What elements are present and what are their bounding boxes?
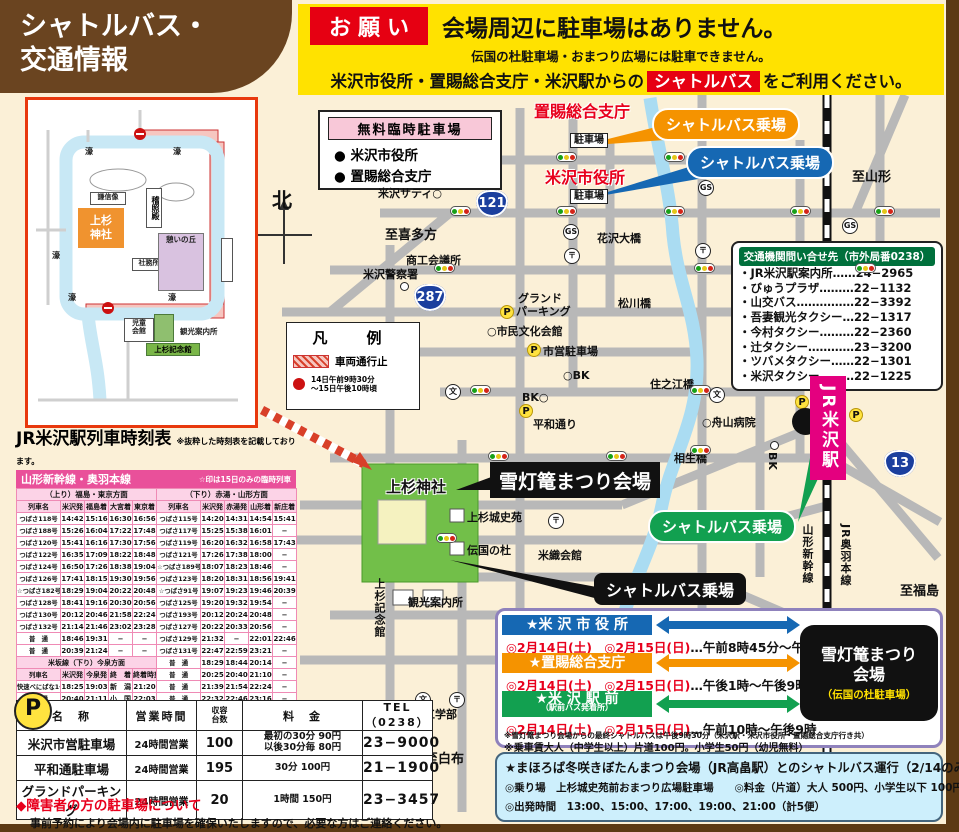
contact-name: ・今村タクシー bbox=[739, 325, 820, 340]
traffic-light-icon bbox=[690, 385, 711, 395]
timetable-row: 普 通18:4619:31−−つばさ129号21:32−22:0122:46 bbox=[17, 633, 297, 645]
contact-dots: …… bbox=[833, 266, 856, 281]
school-icon: 文 bbox=[709, 387, 725, 403]
traffic-light-icon bbox=[690, 445, 711, 455]
venue-inset-map: 濠 濠 濠 濠 濠 上杉神社 稽照殿 謙信像 社務所 憩いの丘 児童会館 上杉記… bbox=[25, 97, 258, 428]
festival-venue-box: 雪灯篭まつり 会場 （伝国の杜駐車場） bbox=[800, 625, 938, 721]
timetable-line-band: 山形新幹線・奥羽本線 ☆印は15日のみの臨時列車 bbox=[16, 470, 296, 488]
map-label: 商工会議所 bbox=[406, 252, 461, 268]
timetable-row: つばさ122号16:3517:0918:2218:48つばさ121号17:261… bbox=[17, 549, 297, 561]
disabled-note-body: 事前予約により会場内に駐車場を確保いたしますので、必要な方はご連絡ください。 bbox=[16, 815, 486, 831]
traffic-light-icon bbox=[556, 206, 577, 216]
map-label: 伝国の杜 bbox=[467, 542, 511, 558]
map-label: 松川橋 bbox=[618, 295, 651, 311]
map-label: 平和通り bbox=[533, 416, 577, 432]
route-badge: 287 bbox=[414, 284, 446, 311]
map-label: BK bbox=[766, 452, 779, 471]
disabled-note-title: ◆障害者の方の駐車場について bbox=[16, 794, 486, 814]
map-label: 駐車場 bbox=[570, 133, 608, 148]
contact-dots: … bbox=[843, 310, 855, 325]
map-label: 置賜総合支庁 bbox=[534, 98, 630, 122]
timetable-row: つばさ118号14:4215:1616:3016:56つばさ115号14:201… bbox=[17, 513, 297, 525]
timetable-row: 普 通20:3921:24−−つばさ131号22:4722:5923:21− bbox=[17, 645, 297, 657]
traffic-light-icon bbox=[694, 263, 715, 273]
venue-box-subtitle: （伝国の杜駐車場） bbox=[822, 687, 917, 702]
shuttle-stop-bubble-okitama: シャトルバス乗場 bbox=[652, 108, 800, 141]
timetable-header-row: 列車名米沢発福島着大宮着東京着列車名米沢発赤湯発山形着新庄着 bbox=[17, 501, 297, 513]
contact-tel: 23−3200 bbox=[854, 340, 912, 355]
traffic-light-icon bbox=[664, 206, 685, 216]
post-office-icon: 〒 bbox=[564, 248, 580, 264]
map-label: JR奥羽本線 bbox=[837, 524, 853, 587]
shuttle-stop-label: ★米 沢 駅 前（駅前バス発着所） bbox=[502, 691, 652, 717]
notice-row3-pre: 米沢市役所・置賜総合支庁・米沢駅からの bbox=[331, 72, 645, 91]
traffic-light-icon bbox=[790, 206, 811, 216]
map-label: 米織会館 bbox=[538, 547, 582, 563]
map-label: 上杉城史苑 bbox=[467, 509, 522, 525]
legend-note-line1: 14日午前9時30分 bbox=[311, 375, 375, 384]
shuttle-stop-label: ★米 沢 市 役 所 bbox=[502, 615, 652, 635]
contact-entry: ・ツバメタクシー……22−1301 bbox=[739, 354, 935, 369]
uesugi-shrine-inset: 上杉神社 bbox=[78, 208, 124, 248]
timetable-table: （上り）福島・東京方面（下り）赤湯・山形方面列車名米沢発福島着大宮着東京着列車名… bbox=[16, 488, 297, 705]
contact-dots: ……… bbox=[820, 325, 855, 340]
contact-name: ・吾妻観光タクシー bbox=[739, 310, 843, 325]
map-label: 観光案内所 bbox=[408, 594, 463, 610]
shuttle-route-arrow bbox=[668, 659, 788, 667]
map-label: 駐車場 bbox=[570, 189, 608, 204]
contact-tel: 22−2360 bbox=[854, 325, 912, 340]
timetable-row: 快速べにばな1号18:2519:03新 潟21:20普 通21:3921:542… bbox=[17, 681, 297, 693]
post-office-icon: 〒 bbox=[695, 243, 711, 259]
timetable-row: つばさ124号16:5017:2618:3819:04☆つばさ189号18:07… bbox=[17, 561, 297, 573]
shuttle-stop-bubble-cityhall: シャトルバス乗場 bbox=[686, 146, 834, 179]
free-parking-box: 無料臨時駐車場 ● 米沢市役所 ● 置賜総合支庁 bbox=[318, 110, 502, 190]
road-closed-label: 車両通行止 bbox=[335, 354, 388, 369]
contact-name: ・辻タクシー bbox=[739, 340, 808, 355]
road-closed-swatch bbox=[293, 355, 329, 368]
contact-tel: 22−1225 bbox=[854, 369, 912, 384]
hill-label: 憩いの丘 bbox=[166, 235, 196, 244]
map-label: 住之江橋 bbox=[650, 376, 694, 392]
train-timetable: JR米沢駅列車時刻表 ※抜粋した時刻表を記載しております。 山形新幹線・奥羽本線… bbox=[16, 424, 296, 705]
parking-icon: P bbox=[500, 305, 514, 319]
traffic-light-icon bbox=[606, 451, 627, 461]
legend-title: 凡 例 bbox=[293, 327, 413, 348]
uesugi-memorial-label: 上杉記念館 bbox=[146, 343, 200, 356]
traffic-light-icon bbox=[874, 206, 895, 216]
moat-label: 濠 bbox=[85, 146, 93, 157]
traffic-light-icon bbox=[436, 533, 457, 543]
contact-dots: ……… bbox=[819, 281, 854, 296]
no-entry-icon bbox=[102, 302, 114, 314]
contact-entry: ・今村タクシー………22−2360 bbox=[739, 325, 935, 340]
traffic-light-icon bbox=[556, 152, 577, 162]
shuttle-time-text: …午後1時〜午後9時 bbox=[690, 678, 807, 693]
moat-label: 濠 bbox=[173, 146, 181, 157]
traffic-light-icon bbox=[488, 451, 509, 461]
contact-name: ・びゅうプラザ bbox=[739, 281, 819, 296]
timetable-title: JR米沢駅列車時刻表 bbox=[16, 429, 171, 449]
contact-dots: ………… bbox=[808, 340, 854, 355]
page-frame-right bbox=[946, 0, 959, 832]
contact-entry: ・JR米沢駅案内所……24−2965 bbox=[739, 266, 935, 281]
shuttle-schedule-box: ★米 沢 市 役 所◎2月14日(土) ◎2月15日(日)…午前8時45分〜午後… bbox=[495, 608, 943, 748]
map-legend: 凡 例 車両通行止 14日午前9時30分 〜15日午後10時頃 bbox=[286, 322, 420, 410]
traffic-light-icon bbox=[434, 263, 455, 273]
timetable-direction-row: （上り）福島・東京方面（下り）赤湯・山形方面 bbox=[17, 489, 297, 501]
contact-name: ・山交バス bbox=[739, 295, 797, 310]
contact-entry: ・吾妻観光タクシー…22−1317 bbox=[739, 310, 935, 325]
contact-tel: 22−1132 bbox=[854, 281, 912, 296]
shuttle-stop-bubble-station: シャトルバス乗場 bbox=[648, 510, 796, 543]
mahoroba-title: ★まほろば冬咲きぼたんまつり会場（JR高畠駅）とのシャトルバス運行（2/14のみ… bbox=[505, 758, 933, 776]
mahoroba-line1: ◎乗り場 上杉城史苑前おまつり広場駐車場 ◎料金（片道）大人 500円、小学生以… bbox=[505, 780, 933, 795]
map-label: 上杉記念館 bbox=[371, 578, 387, 638]
map-label: 市営駐車場 bbox=[543, 343, 598, 359]
parking-row: 平和通駐車場24時間営業19530分 100円21−1900 bbox=[17, 756, 433, 781]
uesugi-shrine-inset-label: 上杉神社 bbox=[89, 214, 113, 243]
map-label: グランド bbox=[518, 290, 562, 306]
line-name: 山形新幹線・奥羽本線 bbox=[21, 471, 131, 487]
contact-dots: …………… bbox=[797, 295, 855, 310]
parking-icon: P bbox=[14, 692, 52, 730]
map-label: ○BK bbox=[563, 369, 590, 382]
notice-row3-post: をご利用ください。 bbox=[763, 72, 912, 91]
mahoroba-shuttle-box: ★まほろば冬咲きぼたんまつり会場（JR高畠駅）とのシャトルバス運行（2/14のみ… bbox=[495, 752, 943, 822]
timetable-row: ☆つばさ182号18:2919:0420:2220:48☆つばさ91号19:07… bbox=[17, 585, 297, 597]
route-badge: 13 bbox=[884, 450, 916, 477]
map-label: ○舟山病院 bbox=[702, 414, 756, 430]
hill-area: 憩いの丘 bbox=[158, 233, 204, 291]
parking-header-row: 名 称営業時間収容台数料 金TEL（0238） bbox=[17, 701, 433, 731]
contact-entry: ・山交バス……………22−3392 bbox=[739, 295, 935, 310]
free-parking-item: ● 米沢市役所 bbox=[320, 143, 500, 164]
building-icon bbox=[400, 282, 409, 291]
timetable-row: 列車名米沢発今泉発終 着終着時刻普 通20:2520:4021:10− bbox=[17, 669, 297, 681]
kenshin-statue-label: 謙信像 bbox=[90, 192, 126, 205]
transport-contact-box: 交通機関問い合せ先（市外局番0238） ・JR米沢駅案内所……24−2965・び… bbox=[731, 241, 943, 391]
shuttle-bus-badge: シャトルバス bbox=[647, 71, 760, 92]
map-label: 北 bbox=[272, 184, 292, 213]
map-label: ○市民文化会館 bbox=[487, 323, 563, 339]
notice-banner: お願い 会場周辺に駐車場はありません。 伝国の杜駐車場・おまつり広場には駐車でき… bbox=[298, 4, 944, 95]
inset-small-building bbox=[221, 238, 233, 282]
contact-name: ・JR米沢駅案内所 bbox=[739, 266, 833, 281]
timetable-row: つばさ120号15:4116:1617:3017:56つばさ119号16:201… bbox=[17, 537, 297, 549]
children-hall-text: 児童会館 bbox=[131, 319, 146, 335]
map-label: 至山形 bbox=[852, 166, 891, 185]
free-parking-title: 無料臨時駐車場 bbox=[328, 117, 492, 140]
post-office-icon: 〒 bbox=[449, 692, 465, 708]
route-badge: 121 bbox=[476, 190, 508, 217]
keishoden-label: 稽照殿 bbox=[146, 188, 162, 228]
gas-station-icon: GS bbox=[842, 218, 858, 234]
map-label: 至喜多方 bbox=[385, 224, 437, 243]
traffic-light-icon bbox=[664, 152, 685, 162]
shuttle-route-arrow bbox=[668, 621, 788, 629]
map-label: 米沢警察署 bbox=[363, 266, 418, 282]
main-notice: 会場周辺に駐車場はありません。 bbox=[442, 9, 786, 43]
parking-icon: P bbox=[795, 395, 809, 409]
contact-tel: 22−1317 bbox=[854, 310, 912, 325]
notice-row3: 米沢市役所・置賜総合支庁・米沢駅からのシャトルバスをご利用ください。 bbox=[331, 68, 912, 92]
timetable-row: つばさ188号15:2616:0417:2217:48つばさ117号15:251… bbox=[17, 525, 297, 537]
shuttle-stop-sublabel: （駅前バス発着所） bbox=[502, 704, 652, 712]
map-label: 米沢市役所 bbox=[545, 164, 625, 188]
map-label: 花沢大橋 bbox=[597, 230, 641, 246]
contact-entry: ・びゅうプラザ………22−1132 bbox=[739, 281, 935, 296]
shuttle-bus-traffic-info-page: シャトルバス・ 交通情報 お願い 会場周辺に駐車場はありません。 伝国の杜駐車場… bbox=[0, 0, 959, 832]
timetable-row: つばさ132号21:1421:4623:0223:28つばさ127号20:222… bbox=[17, 621, 297, 633]
shuttle-stop-label: ★置賜総合支庁 bbox=[502, 653, 652, 673]
notice-row1: お願い 会場周辺に駐車場はありません。 bbox=[298, 7, 944, 45]
parking-icon: P bbox=[527, 343, 541, 357]
page-title-line1: シャトルバス・ bbox=[20, 11, 209, 42]
contact-tel: 22−1301 bbox=[854, 354, 912, 369]
contact-title: 交通機関問い合せ先（市外局番0238） bbox=[739, 247, 935, 266]
gas-station-icon: GS bbox=[698, 180, 714, 196]
shuttle-route-arrow bbox=[668, 700, 788, 708]
tourist-info-inset-label: 観光案内所 bbox=[180, 326, 218, 337]
moat-label: 濠 bbox=[168, 292, 176, 303]
building-icon bbox=[770, 441, 779, 450]
contact-tel: 22−3392 bbox=[854, 295, 912, 310]
line-note: ☆印は15日のみの臨時列車 bbox=[199, 474, 291, 485]
map-label: 山形新幹線 bbox=[799, 524, 815, 584]
shuttle-stop-bubble-denkoku: シャトルバス乗場 bbox=[594, 573, 746, 605]
contact-name: ・米沢タクシー bbox=[739, 369, 820, 384]
parking-icon: P bbox=[519, 404, 533, 418]
children-hall-label: 児童会館 bbox=[124, 318, 154, 342]
post-office-icon: 〒 bbox=[548, 513, 564, 529]
venue-box-title: 雪灯篭まつり 会場 bbox=[821, 645, 917, 685]
memorial-building bbox=[154, 314, 174, 342]
map-label: 至福島 bbox=[900, 580, 939, 599]
timetable-row: つばさ130号20:1220:4621:5822:24つばさ193号20:122… bbox=[17, 609, 297, 621]
mahoroba-line2: ◎出発時間 13:00、15:00、17:00、19:00、21:00（計5便） bbox=[505, 799, 933, 814]
legend-note: 14日午前9時30分 〜15日午後10時頃 bbox=[311, 375, 377, 393]
map-label: パーキング bbox=[516, 303, 571, 319]
contact-dots: …… bbox=[831, 354, 854, 369]
legend-note-line2: 〜15日午後10時頃 bbox=[311, 384, 377, 393]
timetable-row: 米坂線（下り）今泉方面普 通18:2918:4420:14− bbox=[17, 657, 297, 669]
traffic-light-icon bbox=[470, 385, 491, 395]
jr-yonezawa-station: JR米沢駅 bbox=[810, 376, 846, 480]
timetable-row: つばさ128号18:4119:1620:3020:56つばさ125号19:201… bbox=[17, 597, 297, 609]
no-entry-icon bbox=[134, 128, 146, 140]
request-badge: お願い bbox=[310, 7, 428, 45]
moat-label: 濠 bbox=[52, 250, 60, 261]
page-title: シャトルバス・ 交通情報 bbox=[0, 0, 292, 93]
gas-station-icon: GS bbox=[563, 224, 579, 240]
free-parking-item: ● 置賜総合支庁 bbox=[320, 164, 500, 185]
contact-tel: 24−2965 bbox=[856, 266, 914, 281]
disabled-parking-note: ◆障害者の方の駐車場について 事前予約により会場内に駐車場を確保いたしますので、… bbox=[16, 794, 486, 831]
no-entry-icon bbox=[293, 378, 305, 390]
map-label: 相生橋 bbox=[674, 450, 707, 466]
map-label: BK○ bbox=[522, 391, 549, 404]
school-icon: 文 bbox=[445, 384, 461, 400]
traffic-light-icon bbox=[450, 206, 471, 216]
contact-name: ・ツバメタクシー bbox=[739, 354, 831, 369]
parking-icon: P bbox=[849, 408, 863, 422]
page-title-line2: 交通情報 bbox=[20, 45, 128, 76]
sub-notice: 伝国の杜駐車場・おまつり広場には駐車できません。 bbox=[471, 46, 771, 65]
festival-venue-callout: 雪灯篭まつり会場 bbox=[490, 462, 660, 498]
timetable-row: つばさ126号17:4118:1519:3019:56つばさ123号18:201… bbox=[17, 573, 297, 585]
map-label: 上杉神社 bbox=[386, 476, 446, 497]
contact-entry: ・辻タクシー…………23−3200 bbox=[739, 340, 935, 355]
parking-row: 米沢市営駐車場24時間営業100最初の30分 90円以後30分毎 80円23−9… bbox=[17, 731, 433, 756]
moat-label: 濠 bbox=[68, 292, 76, 303]
